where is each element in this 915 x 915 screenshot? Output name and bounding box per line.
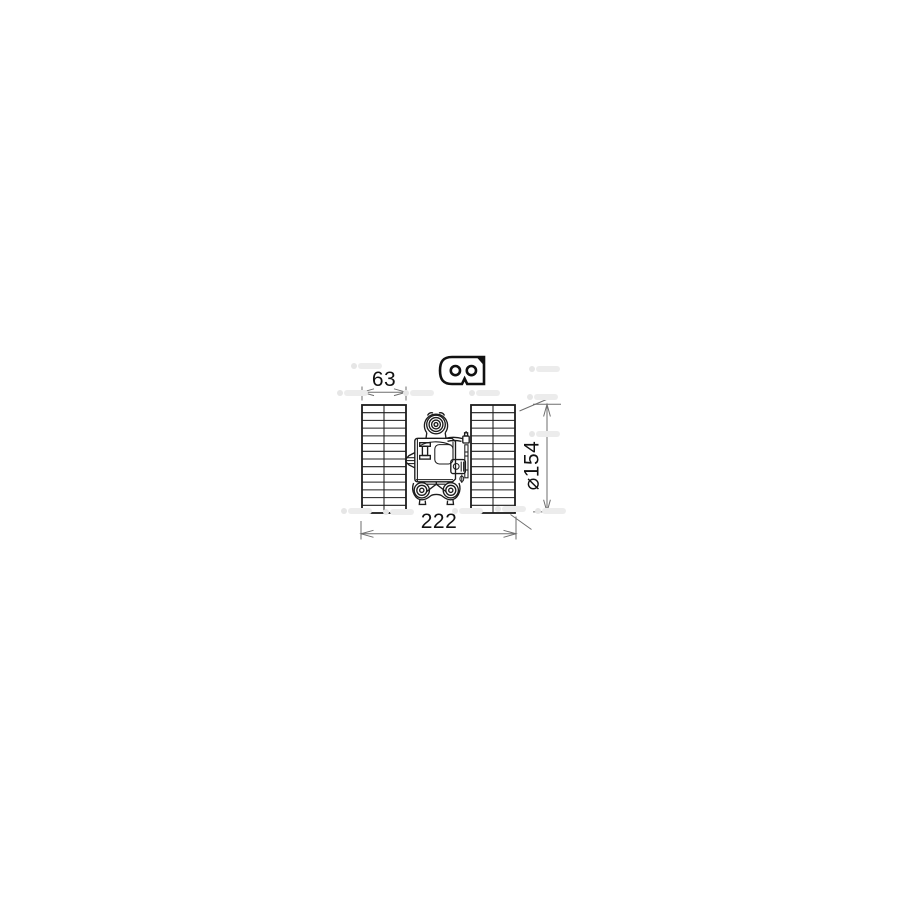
- watermark: [536, 366, 560, 372]
- two-pin-connector-icon: [440, 357, 484, 384]
- watermark: [534, 394, 558, 400]
- watermark: [542, 508, 566, 514]
- clip-wedge: [406, 453, 415, 468]
- bottom-mount: [413, 482, 460, 505]
- drawing-canvas: 63 222 ⌀154: [0, 0, 915, 915]
- shaft-bushing: [424, 413, 447, 439]
- watermark: [358, 363, 382, 369]
- top-bracket: [446, 431, 469, 443]
- watermark: [459, 508, 483, 514]
- watermark: [344, 390, 368, 396]
- fan-cage-right: [471, 405, 515, 513]
- dimension-63-label: 63: [354, 369, 414, 390]
- fan-cage-left: [362, 405, 406, 513]
- watermark: [410, 390, 434, 396]
- watermark: [502, 506, 526, 512]
- watermark: [390, 509, 414, 515]
- blower-motor-assembly: [406, 413, 469, 505]
- technical-drawing: [0, 0, 915, 915]
- watermark: [348, 508, 372, 514]
- watermark: [536, 431, 560, 437]
- watermark: [476, 390, 500, 396]
- motor-housing: [415, 438, 456, 482]
